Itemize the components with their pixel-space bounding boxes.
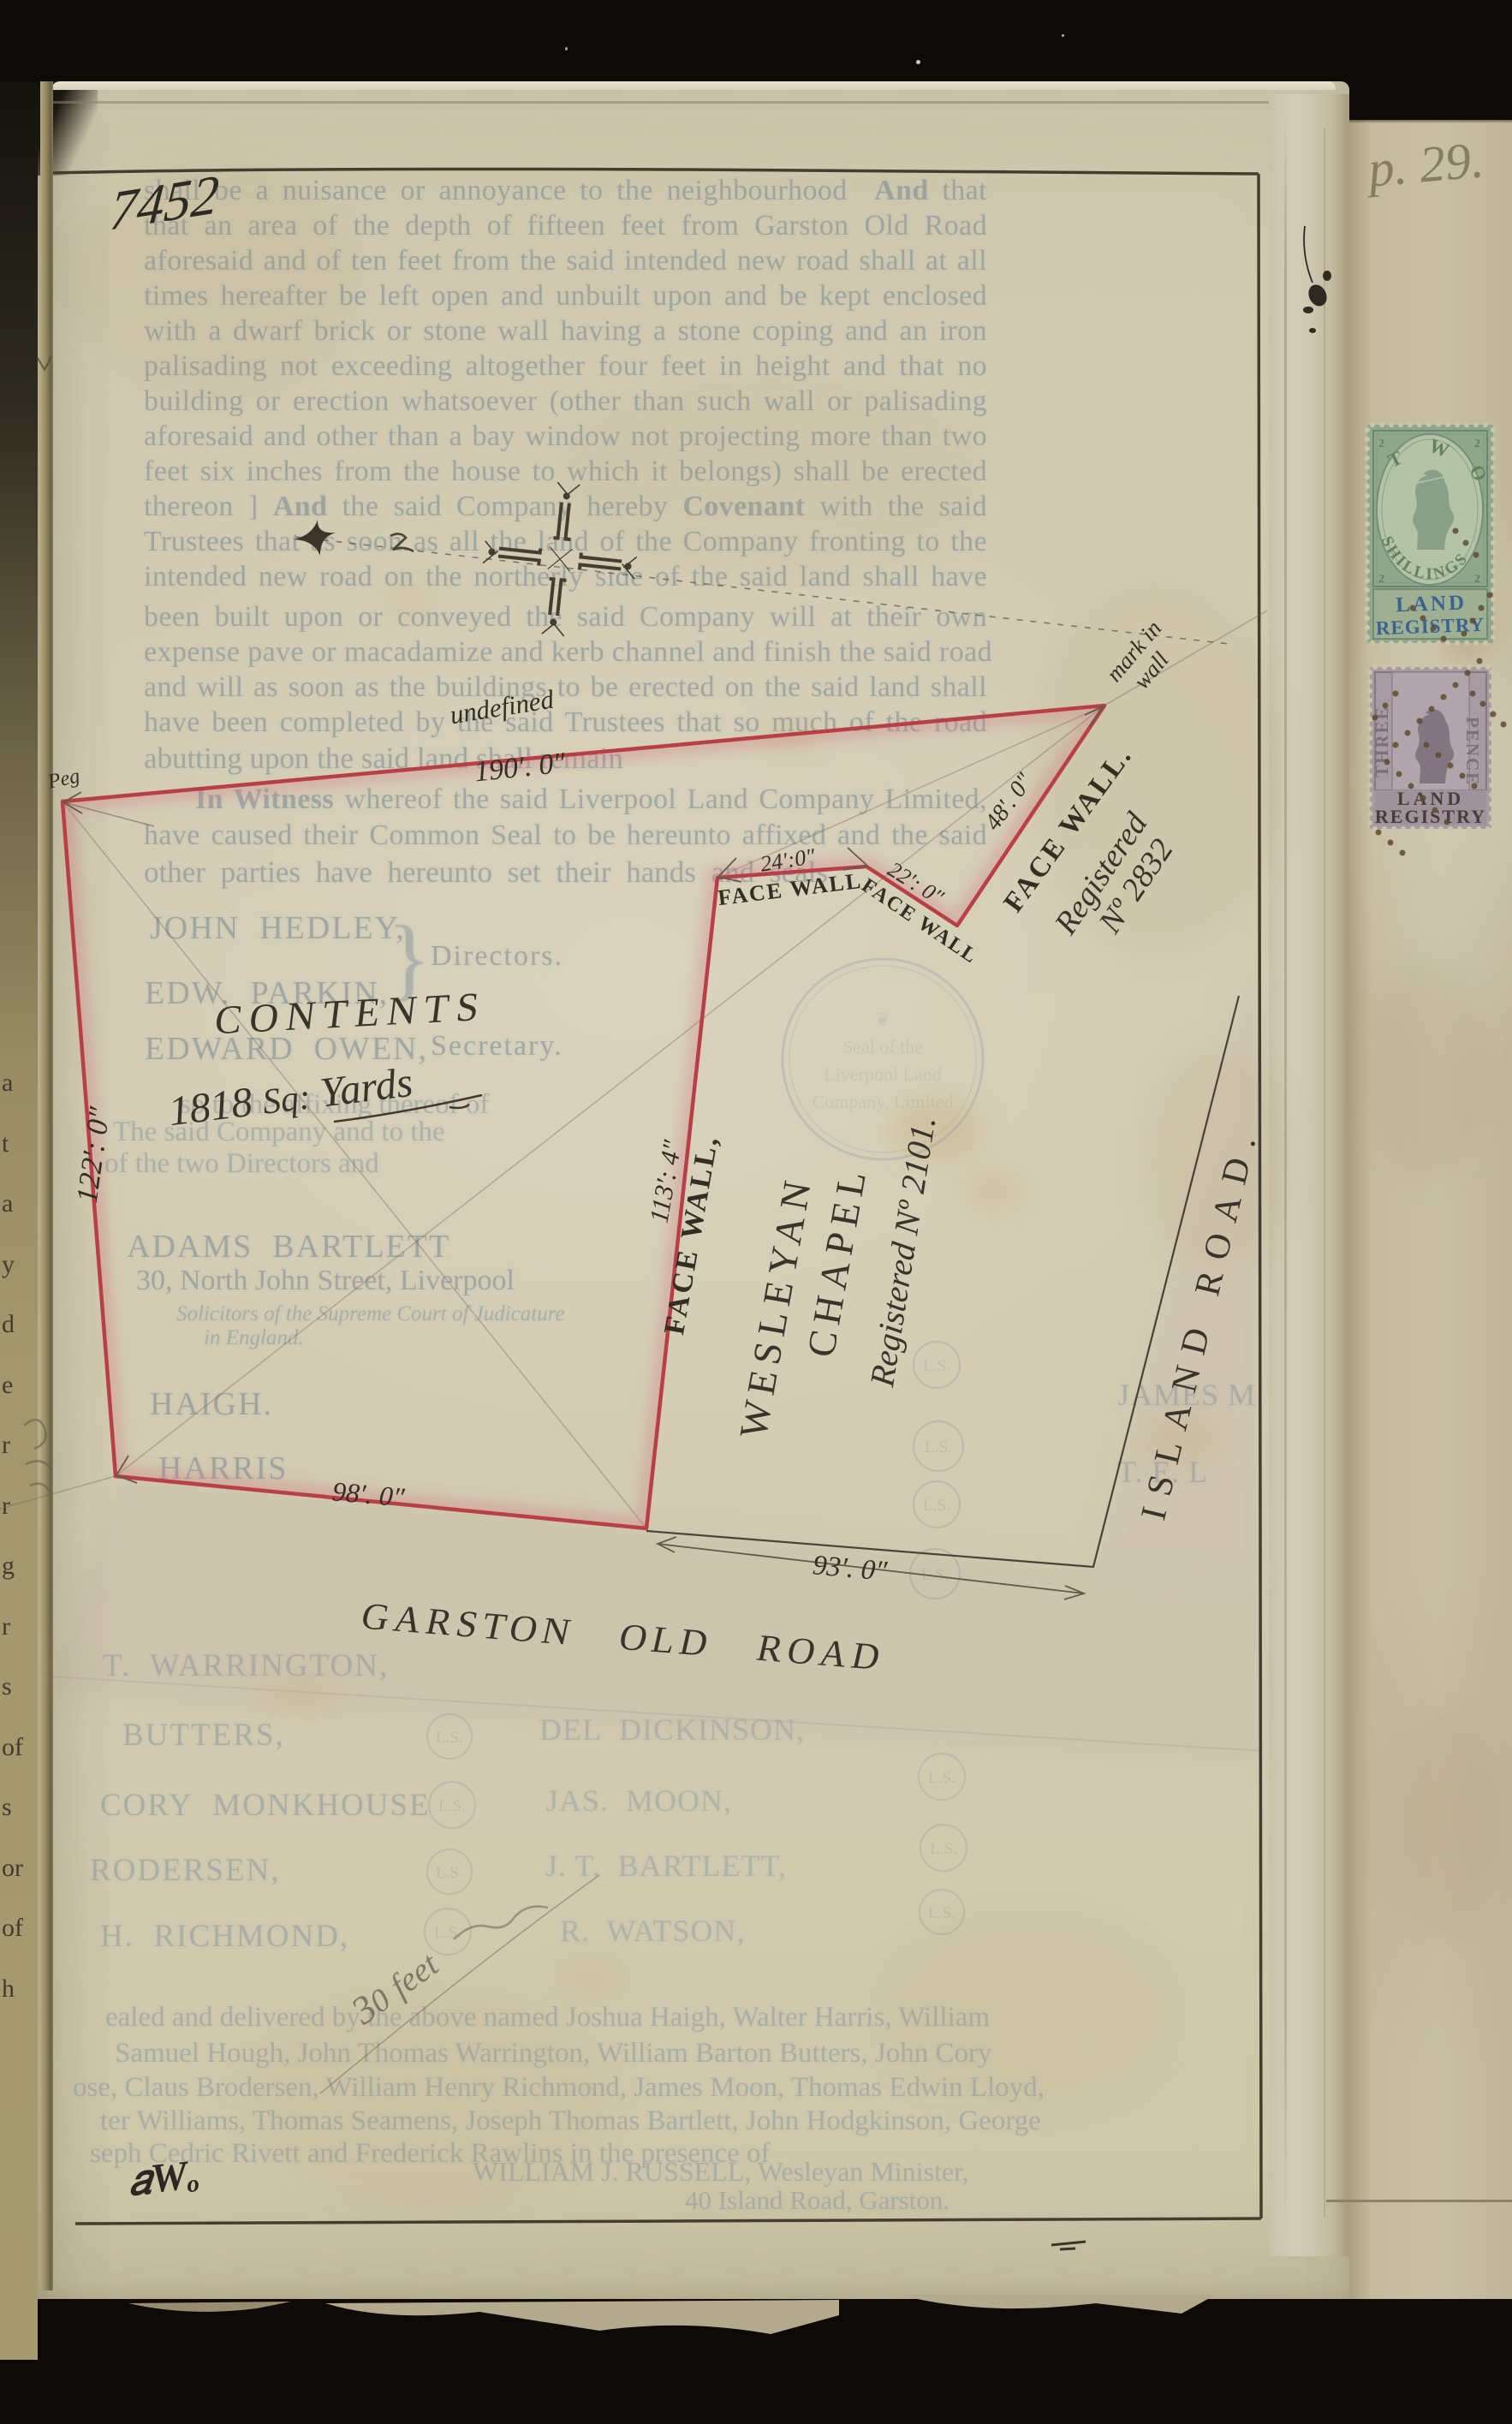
- svg-text:L.S.: L.S.: [923, 1497, 950, 1515]
- svg-text:L.S.: L.S.: [930, 1840, 957, 1858]
- svg-text:L.S.: L.S.: [928, 1769, 955, 1787]
- svg-text:❦: ❦: [875, 1009, 890, 1030]
- svg-text:Seal of the: Seal of the: [842, 1036, 923, 1057]
- svg-text:Company, Limited: Company, Limited: [813, 1091, 954, 1112]
- svg-text:L.S.: L.S.: [923, 1357, 950, 1375]
- svg-text:L.S.: L.S.: [434, 1924, 461, 1942]
- svg-text:2: 2: [1378, 438, 1384, 450]
- svg-text:L.S.: L.S.: [928, 1904, 955, 1922]
- svg-text:L.S.: L.S.: [436, 1729, 463, 1747]
- svg-text:2: 2: [1474, 438, 1480, 450]
- svg-text:L.S.: L.S.: [436, 1864, 463, 1882]
- svg-text:L.S.: L.S.: [438, 1797, 466, 1815]
- svg-text:L.S.: L.S.: [925, 1438, 952, 1456]
- svg-text:Liverpool Land: Liverpool Land: [824, 1063, 941, 1085]
